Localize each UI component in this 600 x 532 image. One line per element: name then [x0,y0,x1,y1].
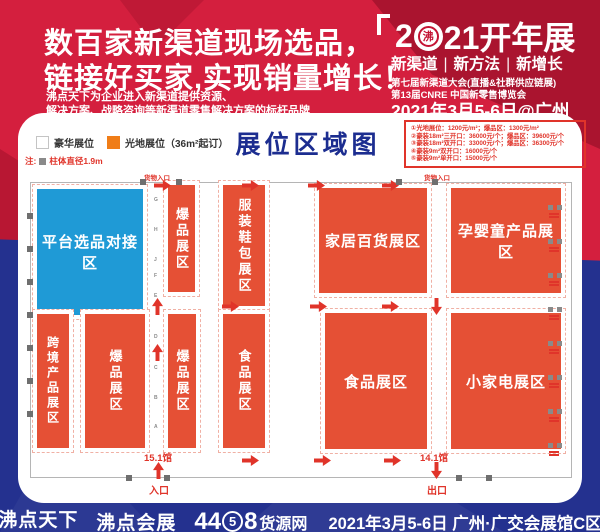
zone-food-large: 食品展区 [320,308,432,454]
pillar-icon [164,475,170,481]
pillar-icon [432,179,438,185]
side-booth [548,375,568,390]
cargo-entrance-label: 货物入口 [144,172,170,182]
banner-subtext-line1: 沸点天下为企业进入新渠道提供资源、 [46,90,310,104]
brand-seal-icon: 沸 [414,22,443,51]
hall-141-label: 14.1馆 [420,450,448,464]
pillar-icon [140,179,146,185]
brand-feidian-tianxia: 沸点天下 99℃+1℃=100℃ [0,505,78,532]
pillar-icon [456,475,462,481]
brand-feidian-huizhan: 沸点会展 [96,508,176,532]
poster: 数百家新渠道现场选品， 链接好买家,实现销量增长！ 沸点天下为企业进入新渠道提供… [0,0,600,532]
event-taglines: 新渠道|新方法|新增长 [391,52,563,74]
floor-map: 平台选品对接区 爆品展区 服装鞋包展区 家居百货展区 孕婴童产品展区 跨境产品展… [18,113,582,503]
zone-cross-border: 跨境产品展区 [32,309,74,453]
zone-hot-products-bottom1: 爆品展区 [80,309,150,453]
tagline-3: 新增长 [516,56,563,73]
pillar-icon [27,378,33,384]
pillar-icon [27,345,33,351]
pillar-icon [126,475,132,481]
side-booth [548,307,568,322]
pillar-icon [27,279,33,285]
side-booth [548,409,568,424]
zone-apparel-shoes-bags: 服装鞋包展区 [218,180,270,311]
entrance-label: 入口 [149,482,169,497]
zone-hot-products-top: 爆品展区 [163,180,200,297]
event-title-left: 2 [395,18,413,55]
footer-bar: 沸点天下 99℃+1℃=100℃ 沸点会展 44 5 8 货源网 2021年3月… [0,505,600,532]
aisle-letter: E [154,293,157,299]
aisle-letter: D [154,334,158,340]
circled-5-icon: 5 [222,511,243,532]
pillar-icon [27,246,33,252]
side-booth [548,443,568,458]
side-booth [548,273,568,288]
zone-platform-matching: 平台选品对接区 [32,184,148,320]
tagline-1: 新渠道 [391,56,438,73]
aisle-letter: G [154,197,158,203]
corner-bracket-icon [377,14,390,35]
footer-date-venue: 2021年3月5-6日 广州·广交会展馆C区 [328,510,600,532]
pillar-icon [486,475,492,481]
side-booth [548,341,568,356]
aisle-letter: B [154,395,158,401]
hall-151-label: 15.1馆 [144,450,172,464]
aisle-letter: J [154,257,157,263]
aisle-letter: F [154,273,157,279]
aisle-letter: H [154,227,158,233]
pillar-icon [27,312,33,318]
brand-4458: 44 5 8 货源网 [194,508,307,532]
side-booth [548,205,568,220]
side-booth [548,239,568,254]
floorplan-panel: 豪华展位 光地展位（36m²起订） 注: 柱体直径1.9m 展位区域图 ①光地展… [18,113,582,503]
aisle-letter: C [154,365,158,371]
aisle-letter: A [154,424,158,430]
zone-home-goods: 家居百货展区 [314,183,432,298]
exit-label: 出口 [427,482,447,497]
pillar-icon [27,411,33,417]
zone-hot-products-bottom2: 爆品展区 [163,309,201,453]
zone-food-narrow: 食品展区 [218,309,270,453]
pillar-icon [176,179,182,185]
pillar-icon [396,179,402,185]
pillar-icon [27,213,33,219]
tagline-2: 新方法 [454,56,501,73]
